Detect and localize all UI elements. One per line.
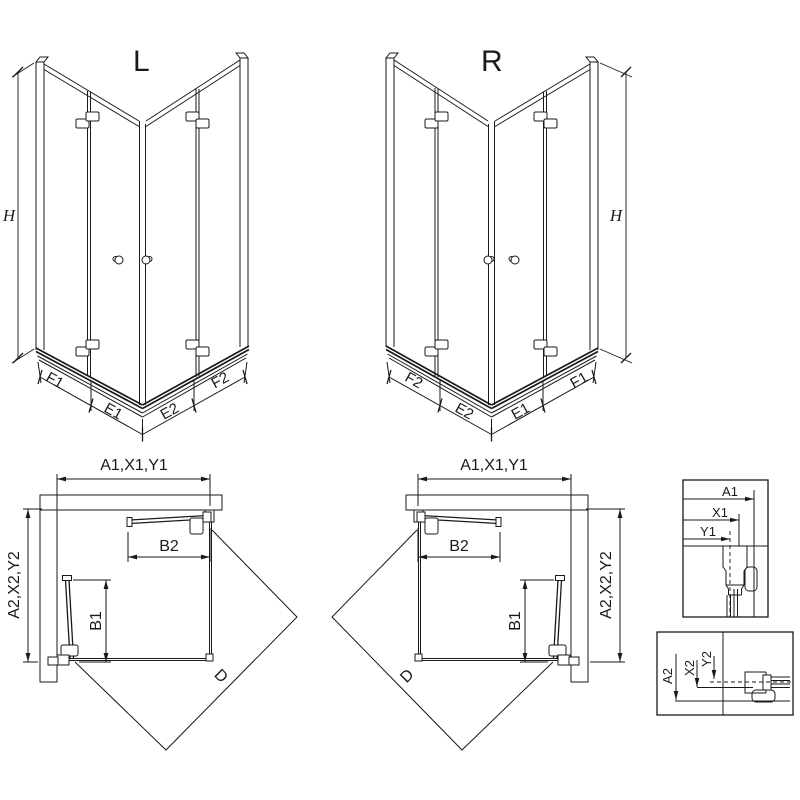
dim-label-e2-right: E2 [452,400,476,424]
top-door [127,512,211,534]
height-dim-label-right: H [609,206,624,225]
hinge-icons [76,112,209,356]
diagonal-dimension: D [332,530,553,750]
side-door [48,576,78,666]
door-side-dim-label: B1 [88,611,105,631]
bottom-dimensions-left: F1 E1 E2 F2 [38,362,247,442]
variant-label-left: L [133,45,150,78]
detail-wall-profile-side: A2 X2 Y2 [652,628,800,723]
detail-dim-y2: Y2 [699,651,714,667]
depth-dim-label: A2,X2,Y2 [598,551,615,619]
dim-label-f1-left: F1 [43,369,67,392]
detail-dim-a2: A2 [660,668,675,684]
perspective-view-right: R H [368,40,653,452]
detail-dim-a1: A1 [722,484,738,499]
door-side-dimension: B1 [73,580,111,662]
width-dim-label: A1,X1,Y1 [100,457,168,474]
door-panels [88,88,200,405]
dim-label-e2-left: E2 [158,400,182,424]
dim-label-f1-right: F1 [567,369,591,392]
width-dim-label: A1,X1,Y1 [460,457,528,474]
top-door [417,512,501,534]
width-dimension: A1,X1,Y1 [57,457,210,506]
door-side-dimension: B1 [507,580,554,662]
dim-label-f2-left: F2 [208,369,232,392]
knob-icons [484,256,519,264]
width-dimension: A1,X1,Y1 [418,457,571,506]
dim-label-f2-right: F2 [402,369,426,392]
hinge-icons [425,112,557,356]
wall-profile-section [723,546,757,617]
side-door [549,576,579,666]
bottom-dimensions-right: F2 E2 E1 F1 [387,362,596,442]
plan-view-left: A1,X1,Y1 A2,X2,Y2 [0,448,320,763]
detail-dim-x2: X2 [682,660,697,676]
detail-dim-y1: Y1 [700,524,716,539]
adjustment-dimensions: A2 X2 Y2 [660,651,753,700]
depth-dimension: A2,X2,Y2 [586,509,625,662]
diagonal-dimension: D [75,530,297,750]
depth-dim-label: A2,X2,Y2 [6,551,23,619]
adjustment-dimensions: A1 X1 Y1 [683,484,754,546]
height-dimension-right: H [600,63,632,363]
door-panels [435,88,547,405]
dim-label-e1-left: E1 [101,400,125,424]
dim-label-e1-right: E1 [509,400,533,424]
knob-icons [113,256,152,264]
wall-profiles [36,53,248,350]
variant-label-right: R [481,45,503,78]
diagonal-dim-label: D [211,666,231,686]
depth-dimension: A2,X2,Y2 [6,509,42,662]
door-top-dim-label: B2 [159,538,179,555]
perspective-view-left: L H [0,40,300,452]
plan-view-right: A1,X1,Y1 A2,X2,Y2 [325,448,637,763]
height-dimension-left: H [2,63,34,363]
wall-profiles [386,53,598,350]
door-top-dim-label: B2 [449,538,469,555]
door-side-dim-label: B1 [507,611,524,631]
diagonal-dim-label: D [397,666,417,686]
detail-dim-x1: X1 [712,505,728,520]
detail-wall-profile-top: A1 X1 Y1 [678,475,783,625]
technical-drawing-sheet: L H [0,0,800,800]
height-dim-label-left: H [2,206,17,225]
